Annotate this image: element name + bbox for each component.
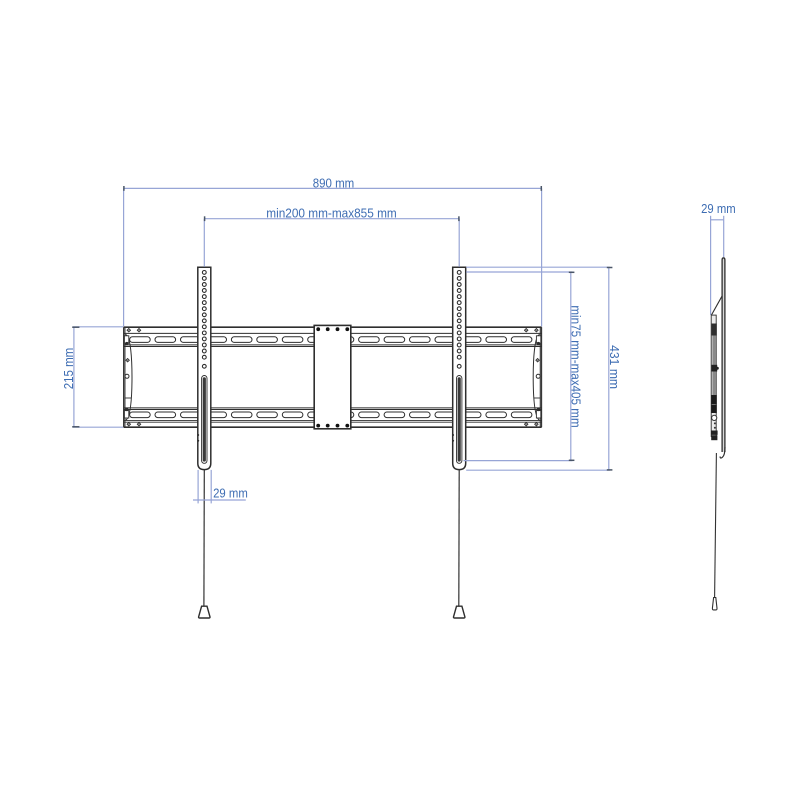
svg-text:890 mm: 890 mm — [313, 175, 355, 190]
svg-text:29 mm: 29 mm — [701, 201, 736, 216]
svg-text:29 mm: 29 mm — [213, 486, 248, 501]
svg-text:min75 mm-max405 mm: min75 mm-max405 mm — [569, 305, 584, 427]
svg-text:min200 mm-max855 mm: min200 mm-max855 mm — [266, 206, 397, 221]
svg-text:215 mm: 215 mm — [61, 348, 76, 390]
svg-text:431 mm: 431 mm — [607, 345, 622, 389]
